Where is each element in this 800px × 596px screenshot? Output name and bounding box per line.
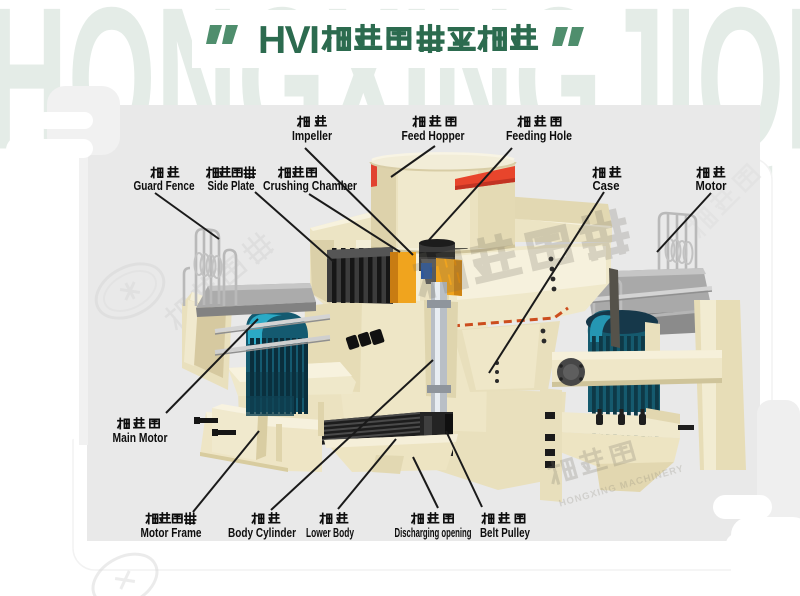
svg-text:HVI: HVI — [258, 19, 320, 62]
svg-text:Discharging opening: Discharging opening — [395, 526, 472, 540]
svg-text:Motor: Motor — [696, 179, 727, 193]
svg-text:Crushing Chamber: Crushing Chamber — [263, 179, 357, 193]
svg-text:Main Motor: Main Motor — [113, 431, 168, 445]
svg-text:Feeding Hole: Feeding Hole — [506, 129, 572, 143]
svg-text:Impeller: Impeller — [292, 129, 332, 143]
svg-text:Body Cylinder: Body Cylinder — [228, 526, 296, 540]
svg-text:Side Plate: Side Plate — [208, 179, 255, 193]
svg-text:Belt Pulley: Belt Pulley — [480, 526, 530, 540]
svg-text:Guard Fence: Guard Fence — [134, 179, 195, 193]
svg-text:Feed Hopper: Feed Hopper — [402, 129, 465, 143]
svg-text:Case: Case — [593, 179, 620, 193]
svg-text:Lower Body: Lower Body — [306, 526, 354, 540]
svg-text:Motor Frame: Motor Frame — [141, 526, 202, 540]
